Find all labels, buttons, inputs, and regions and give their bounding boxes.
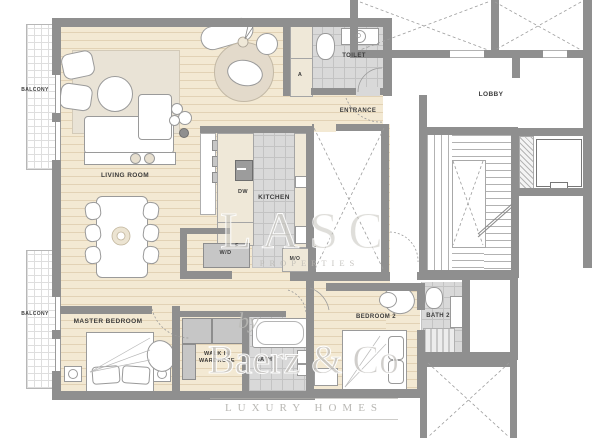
bath2-shower <box>423 328 455 355</box>
watermark-rule-bottom <box>210 419 398 420</box>
wall <box>419 95 427 278</box>
window-jamb <box>52 113 61 122</box>
sofa-chaise <box>138 94 172 140</box>
lobby-door-opening <box>543 50 567 58</box>
room-label-bedroom2: BEDROOM 2 <box>346 314 406 320</box>
wall <box>290 272 390 281</box>
wall <box>383 20 392 96</box>
elevator-shaft-hatch <box>519 136 534 190</box>
wall <box>283 20 290 96</box>
wall <box>510 360 517 438</box>
wall <box>180 271 232 279</box>
watermark-tagline: LUXURY HOMES <box>210 402 398 414</box>
decor-bowl <box>144 153 155 164</box>
window-jamb <box>52 371 61 380</box>
coffee-table <box>97 76 133 112</box>
watermark-big-text: LASC <box>220 202 393 261</box>
wall <box>511 128 519 278</box>
wall <box>419 270 518 278</box>
nook-side-table <box>256 33 278 55</box>
room-label-lobby: LOBBY <box>461 92 521 99</box>
window-jamb <box>52 66 61 75</box>
room-label-master-bedroom: MASTER BEDROOM <box>58 319 158 326</box>
wall <box>417 352 518 360</box>
toilet-door-opening <box>356 87 380 96</box>
stair-void <box>452 160 486 248</box>
pillow <box>121 365 150 385</box>
wall <box>510 272 518 360</box>
wall <box>417 283 425 310</box>
dining-table <box>96 196 148 278</box>
room-label-cabinet-a: A <box>292 73 308 79</box>
cooktop-handle <box>237 168 246 170</box>
window-jamb <box>52 288 61 297</box>
wall <box>52 18 61 70</box>
wall <box>200 126 313 133</box>
wall <box>420 360 427 438</box>
wall <box>426 127 518 135</box>
plant <box>169 115 180 126</box>
cooktop <box>235 160 253 181</box>
wall <box>491 0 499 53</box>
stair-flight-right <box>484 135 511 270</box>
bath2-wc <box>425 287 443 309</box>
entry-door-opening <box>383 96 392 124</box>
bedroom2-armchair-back <box>379 292 397 308</box>
room-label-living-room: LIVING ROOM <box>75 173 175 180</box>
decor-bowl <box>130 153 141 164</box>
wall <box>519 188 591 196</box>
floor-plan: BALCONY BALCONY LIVING ROOM DW KITCHEN F… <box>0 0 600 438</box>
wall <box>326 283 423 291</box>
watermark-by: by <box>238 308 259 334</box>
wall <box>512 58 520 78</box>
watermark-brand: Baerz & Co <box>208 336 398 383</box>
watermark-properties: PROPERTIES <box>222 258 397 268</box>
window-jamb <box>52 160 61 169</box>
bath-door-opening <box>286 310 306 318</box>
stair-landing-bottom <box>452 246 484 270</box>
hall-cabinet-upper <box>290 24 313 60</box>
wall <box>52 166 61 290</box>
wall <box>172 306 180 391</box>
wall <box>308 389 423 398</box>
door-opening <box>314 123 336 132</box>
armchair <box>58 82 93 112</box>
window-jamb <box>52 330 61 339</box>
room-label-balcony-top: BALCONY <box>12 88 58 93</box>
elevator-cab <box>536 139 582 187</box>
wall <box>462 276 470 360</box>
room-label-entrance: ENTRANCE <box>334 108 382 114</box>
stair-flight-left <box>427 135 452 270</box>
lobby-door-opening <box>450 50 484 58</box>
wall <box>511 128 591 136</box>
plant <box>178 111 192 125</box>
room-label-balcony-bottom: BALCONY <box>12 312 58 317</box>
side-table <box>179 128 189 138</box>
lamp <box>68 369 78 379</box>
room-label-kitchen: KITCHEN <box>248 195 300 202</box>
pillow <box>91 365 120 385</box>
watermark-rule-top <box>210 398 398 399</box>
room-label-bath2: BATH 2 <box>419 313 457 319</box>
room-label-toilet: TOILET <box>334 53 374 59</box>
wall <box>420 360 517 367</box>
wall <box>180 228 187 277</box>
wall <box>60 306 152 314</box>
wall <box>52 18 392 27</box>
toilet-wc <box>316 33 335 60</box>
stair-landing-top <box>452 135 484 160</box>
